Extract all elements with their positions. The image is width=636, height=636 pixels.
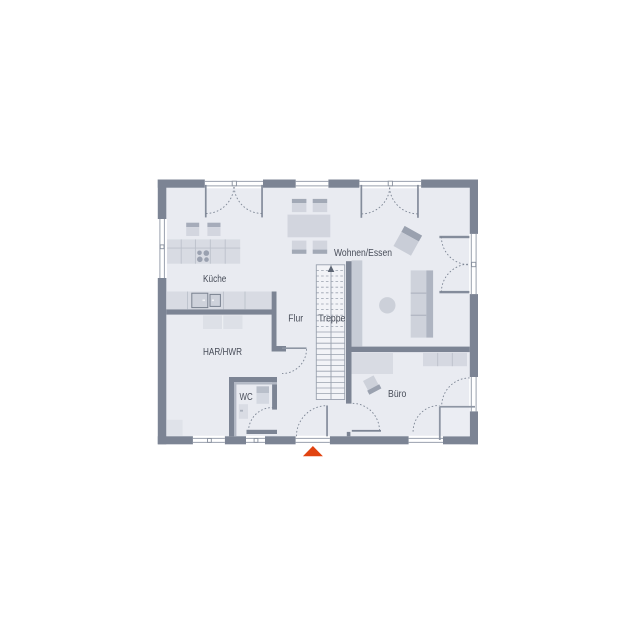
- svg-text:HAR/HWR: HAR/HWR: [203, 346, 242, 358]
- svg-text:Küche: Küche: [203, 273, 227, 285]
- svg-text:Treppe: Treppe: [318, 313, 345, 325]
- svg-text:Büro: Büro: [388, 388, 406, 400]
- svg-text:Flur: Flur: [288, 313, 303, 325]
- svg-text:Wohnen/Essen: Wohnen/Essen: [334, 247, 392, 259]
- svg-text:WC: WC: [240, 391, 254, 403]
